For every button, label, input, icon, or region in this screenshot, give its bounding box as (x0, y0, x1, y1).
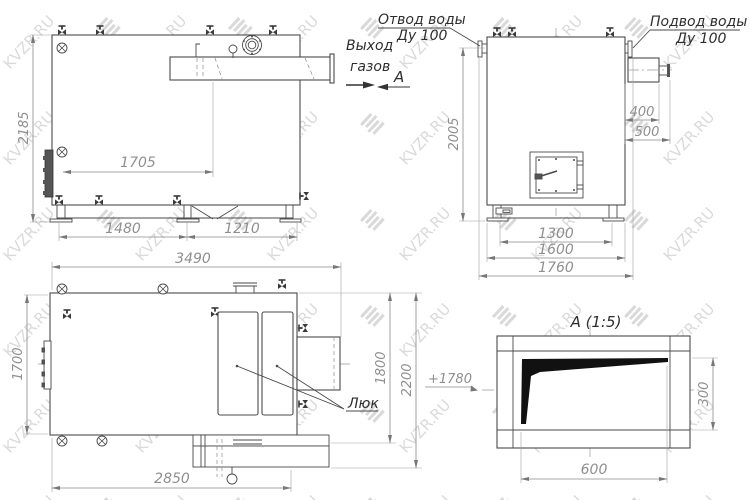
dim-front-base1: 1300 (538, 226, 574, 242)
dim-front-duct2: 500 (635, 125, 660, 140)
dim-side-span1: 1480 (105, 221, 141, 237)
dim-detail-w: 600 (581, 462, 608, 478)
level-mark-text: +1780 (428, 372, 472, 387)
hatch-label-text: Люк (347, 396, 379, 412)
lifting-lug-icon (158, 284, 168, 294)
lifting-lug-icon (57, 43, 67, 53)
detail-title: А (1:5) (570, 313, 622, 331)
water-outlet-line2: Ду 100 (396, 28, 447, 44)
water-inlet-line1: Подвод воды (650, 14, 747, 30)
safety-valve-flange-icon (243, 36, 262, 55)
boiler-technical-drawing: KVZR.RU (0, 0, 750, 500)
hatch-1 (218, 312, 258, 415)
dim-plan-bottom: 2850 (154, 471, 190, 487)
lifting-lug-icon (57, 436, 67, 446)
dim-plan-r1: 1800 (374, 351, 389, 384)
dim-plan-width: 1700 (11, 347, 26, 380)
water-outlet-line1: Отвод воды (378, 12, 466, 28)
dim-plan-length: 3490 (175, 251, 211, 267)
dim-side-inner-width: 1705 (120, 155, 156, 171)
dim-front-base3: 1760 (538, 260, 574, 276)
dim-front-base2: 1600 (538, 242, 574, 258)
dim-plan-r2: 2200 (400, 363, 415, 396)
dim-front-duct1: 400 (630, 105, 655, 120)
gas-outlet-label-line1: Выход (346, 38, 393, 54)
front-door (530, 152, 583, 198)
view-a-letter: А (393, 68, 404, 86)
lifting-lug-icon (57, 147, 67, 157)
gas-outlet-label-line2: газов (350, 59, 390, 75)
dim-front-height: 2005 (447, 117, 462, 150)
dim-side-span2: 1210 (224, 221, 260, 237)
drawing-canvas: KVZR.RU (0, 0, 750, 500)
dim-detail-h: 300 (697, 382, 712, 407)
water-inlet-line2: Ду 100 (675, 31, 726, 47)
lifting-lug-icon (97, 436, 107, 446)
lifting-lug-icon (57, 284, 67, 294)
dim-side-height: 2185 (17, 111, 32, 144)
hatch-2 (262, 312, 293, 415)
